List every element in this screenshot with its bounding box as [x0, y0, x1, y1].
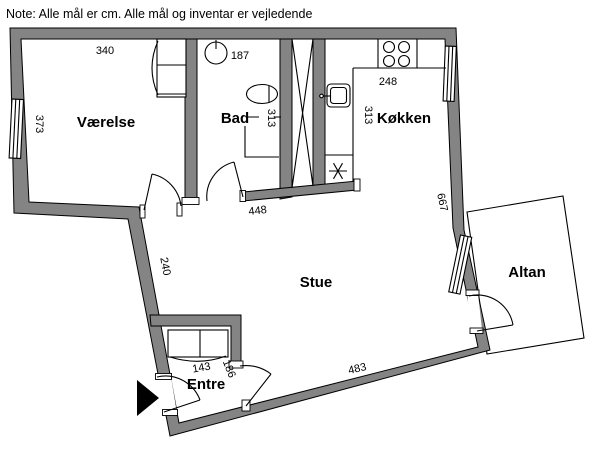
stove-icon — [378, 39, 417, 68]
room-label-stue: Stue — [300, 274, 333, 291]
entrance-arrow-icon — [137, 380, 159, 416]
floor-plan-page: Note: Alle mål er cm. Alle mål og invent… — [0, 0, 600, 452]
dim-stue-bottom: 483 — [347, 361, 368, 377]
window-vaerelse — [9, 99, 23, 158]
washbasin-icon — [205, 40, 227, 64]
wardrobe-entre — [168, 330, 228, 361]
partition-vaerelse-bad — [185, 39, 197, 199]
dim-entre-wall: 240 — [157, 256, 172, 276]
dim-koekken-width: 248 — [379, 76, 397, 88]
freezer-icon — [329, 163, 347, 179]
dim-vaerelse-width: 340 — [96, 45, 114, 57]
dim-entre-closet-width: 143 — [191, 361, 211, 376]
note-text: Note: Alle mål er cm. Alle mål og invent… — [6, 7, 312, 21]
vaerelse-door-arc — [144, 174, 181, 210]
wall-cap — [354, 179, 360, 191]
dim-stue-top: 448 — [248, 204, 268, 218]
room-label-vaerelse: Værelse — [77, 114, 135, 131]
dim-bad-width: 187 — [231, 50, 249, 62]
wardrobe-vaerelse — [152, 39, 186, 97]
partition-bad-stue — [243, 181, 357, 201]
partition-closet-koekken — [313, 39, 325, 190]
room-label-bad: Bad — [221, 110, 249, 127]
dim-bad-depth: 313 — [265, 109, 277, 127]
dim-vaerelse-depth: 373 — [33, 115, 45, 133]
bad-door-arc — [207, 162, 243, 201]
partition-bad-closet — [280, 39, 292, 199]
room-label-altan: Altan — [508, 264, 546, 281]
window-koekken — [443, 46, 456, 101]
entrance-door-opening — [157, 377, 177, 413]
floor-plan: Note: Alle mål er cm. Alle mål og invent… — [0, 0, 600, 452]
room-label-entre: Entre — [187, 376, 225, 393]
dim-koekken-depth: 313 — [362, 106, 374, 124]
wall-cap — [182, 198, 199, 205]
balcony-door-opening — [467, 293, 482, 330]
shower-partition — [245, 126, 279, 157]
room-label-koekken: Køkken — [377, 110, 431, 127]
dim-right-wall: 667 — [434, 192, 450, 212]
toilet-icon — [247, 85, 278, 104]
